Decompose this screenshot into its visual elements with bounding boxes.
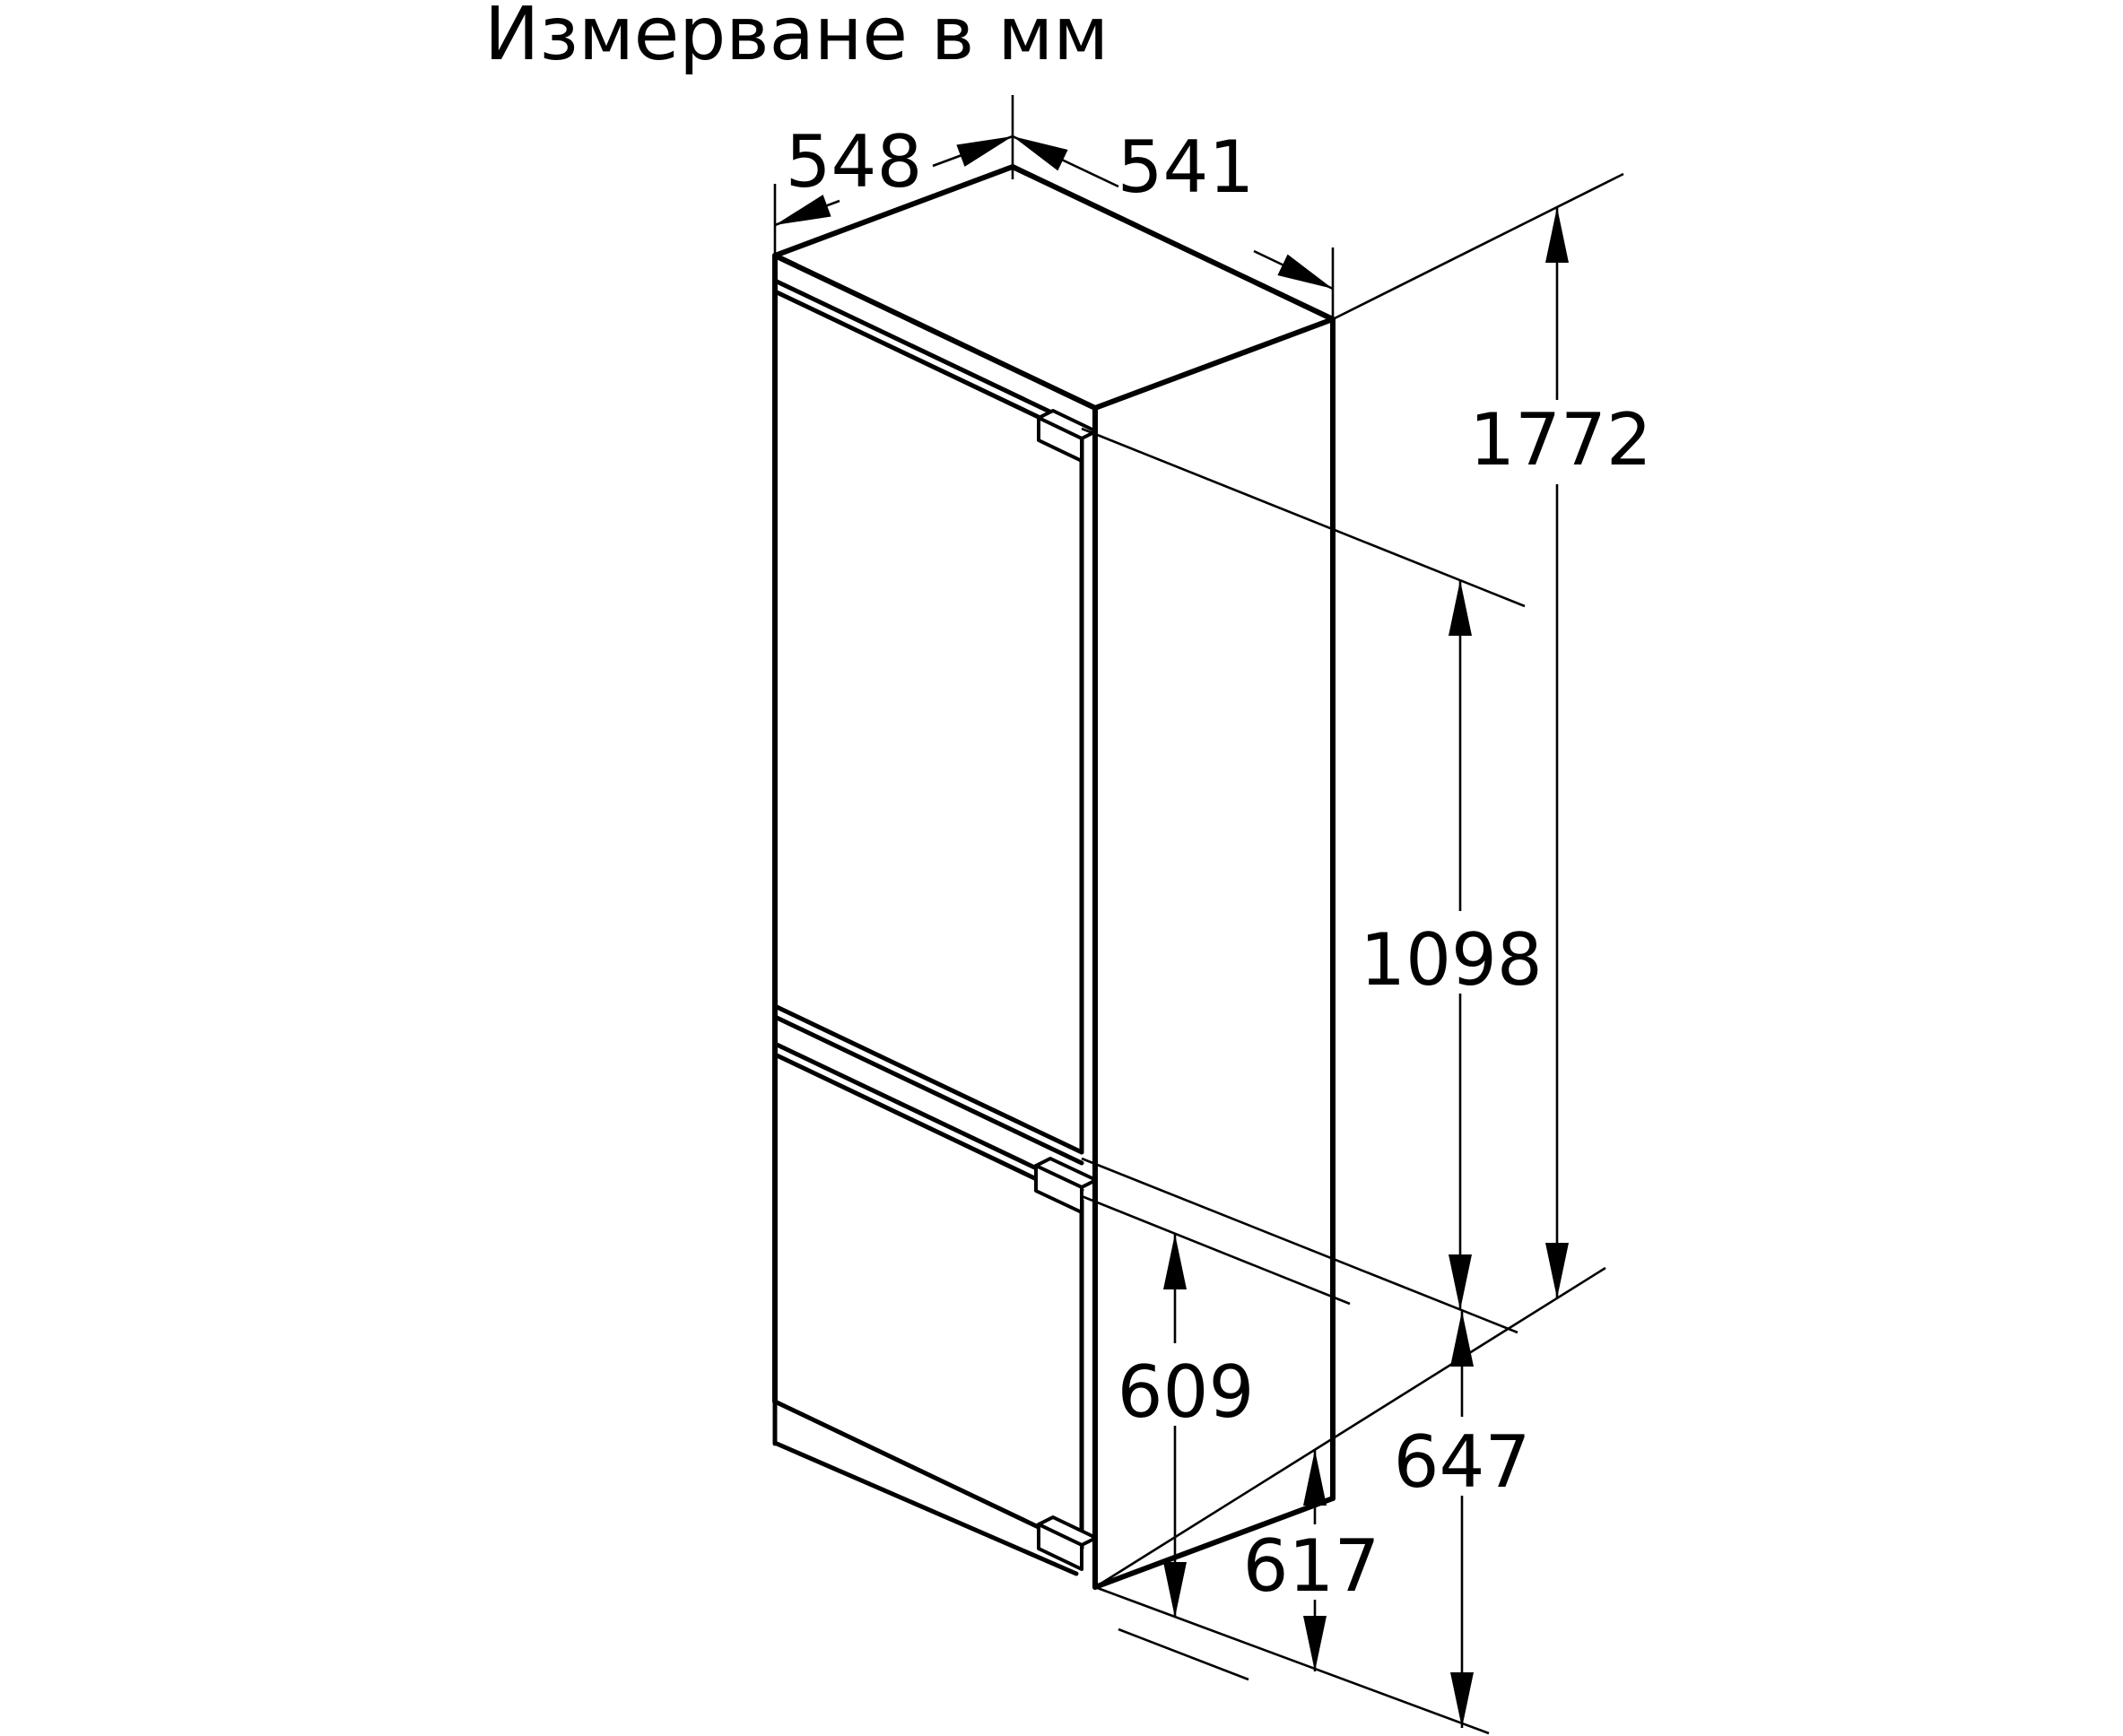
depth-label: 548 xyxy=(786,120,923,204)
lower-niche-label: 647 xyxy=(1394,1420,1531,1504)
lower-niche-dimension: 647 xyxy=(1394,1311,1531,1728)
lower-compartment-label: 609 xyxy=(1118,1350,1255,1434)
top-plane-extension-line xyxy=(1333,174,1623,319)
upper-door-bottom-edge-outer xyxy=(775,1006,1082,1152)
depth-arrow-to-apex xyxy=(956,136,1013,167)
door-details xyxy=(775,281,1082,1574)
hinge-blocks xyxy=(1036,411,1096,1569)
dimension-drawing-page: 548 541 1772 1098 609 617 xyxy=(0,0,2123,1736)
page-title: Измерване в мм xyxy=(484,0,1109,77)
plinth-bottom-edge xyxy=(777,1444,1076,1574)
upper-door-label: 1098 xyxy=(1360,918,1543,1002)
lower-niche-arrow-top xyxy=(1450,1311,1474,1367)
total-height-dimension: 1772 xyxy=(1469,207,1652,1298)
lower-door-arrow-top xyxy=(1303,1450,1327,1506)
fridge-dimension-diagram: 548 541 1772 1098 609 617 xyxy=(0,0,2123,1736)
lower-door-arrow-bottom xyxy=(1303,1616,1327,1671)
total-height-arrow-top xyxy=(1545,207,1569,263)
upper-door-arrow-top xyxy=(1449,580,1472,636)
upper-door-top-edge-inner xyxy=(775,291,1082,438)
upper-door-top-edge-outer xyxy=(775,281,1082,427)
total-height-arrow-bottom xyxy=(1545,1243,1569,1298)
division-upper-extension-line xyxy=(1082,1159,1518,1332)
top-face-front-left-edge xyxy=(775,256,1095,408)
upper-door-dimension: 1098 xyxy=(1360,580,1543,1310)
lower-door-label: 617 xyxy=(1243,1524,1380,1608)
width-dimension: 541 xyxy=(1013,126,1333,332)
upper-door-arrow-bottom xyxy=(1449,1254,1472,1310)
width-arrow-to-apex xyxy=(1013,136,1068,170)
upper-door-bottom-edge-inner xyxy=(775,1017,1082,1163)
total-height-label: 1772 xyxy=(1469,398,1652,482)
freezer-door-bottom-edge xyxy=(775,1402,1082,1548)
lower-compartment-arrow-bottom xyxy=(1163,1562,1187,1618)
floor-line xyxy=(1095,1587,1489,1733)
width-arrow-to-right-corner xyxy=(1277,255,1333,289)
lower-compartment-arrow-top xyxy=(1163,1234,1187,1289)
top-face-front-right-edge xyxy=(1095,319,1333,408)
door-top-reference-line xyxy=(1082,429,1525,606)
width-label: 541 xyxy=(1118,126,1255,209)
